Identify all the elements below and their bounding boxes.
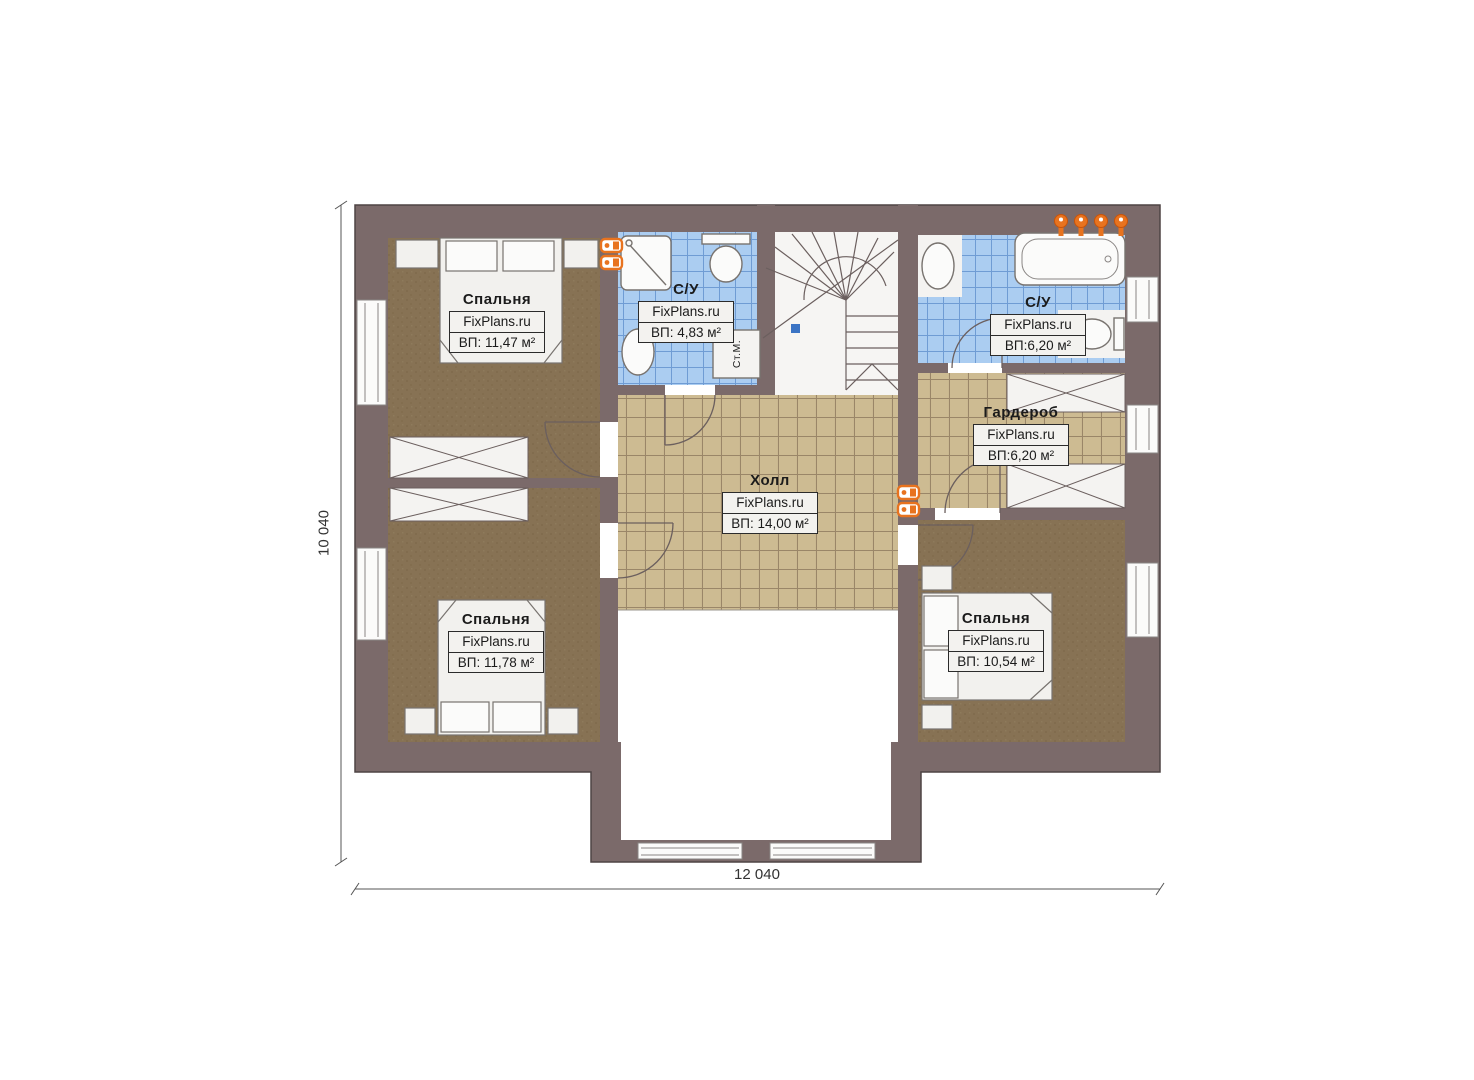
window-wardrobe bbox=[1127, 405, 1158, 453]
floor-plan-page: Спальня FixPlans.ru ВП: 11,47 м² С/У Fix… bbox=[0, 0, 1474, 1080]
open-void bbox=[618, 610, 898, 742]
window-bedroom-bottom-right bbox=[1127, 563, 1158, 637]
sink bbox=[622, 329, 654, 375]
bay-interior bbox=[621, 742, 891, 840]
bathtub bbox=[1015, 233, 1125, 285]
dimension-line-horizontal bbox=[351, 883, 1164, 895]
washing-machine bbox=[713, 330, 760, 378]
hall-floor bbox=[618, 395, 898, 610]
window-bay-left bbox=[638, 843, 742, 859]
toilet bbox=[1073, 318, 1124, 350]
closet-bottom-left-bedroom bbox=[390, 488, 528, 521]
dimension-line-vertical bbox=[335, 201, 347, 866]
stair-direction-marker bbox=[791, 324, 800, 333]
window-bedroom-top-left bbox=[357, 300, 386, 405]
closet-top-left-bedroom bbox=[390, 437, 528, 478]
floor-plan-drawing bbox=[0, 0, 1474, 1080]
window-bathroom-right bbox=[1127, 277, 1158, 322]
shower-cabin bbox=[621, 236, 671, 290]
sink bbox=[922, 243, 954, 289]
closet-wardrobe-bottom bbox=[1007, 464, 1125, 508]
window-bedroom-bottom-left bbox=[357, 548, 386, 640]
window-bay-right bbox=[770, 843, 875, 859]
stairwell-floor bbox=[775, 232, 898, 395]
closet-wardrobe-top bbox=[1007, 374, 1125, 412]
